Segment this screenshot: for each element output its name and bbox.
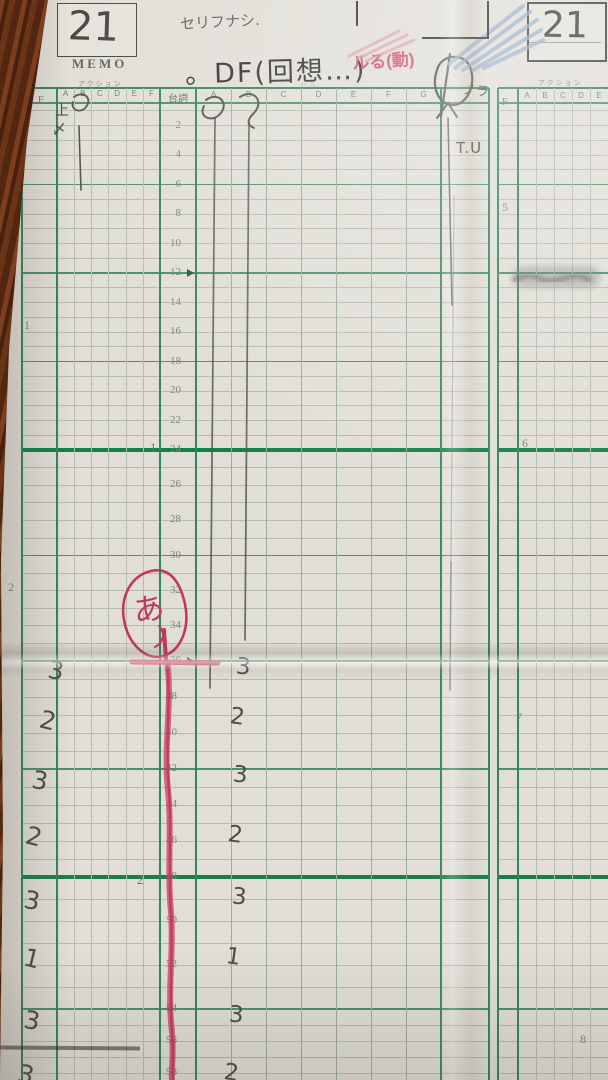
red-stub xyxy=(164,630,166,660)
loop-mark-action-b xyxy=(72,94,88,110)
pencil-line-cell-b xyxy=(245,122,249,640)
photo-of-anime-timing-sheet: ABCDEFABCDEFGABCDEF246810121416182022242… xyxy=(0,0,608,1080)
timing-count-middle: 3 xyxy=(235,653,252,680)
red-scribble xyxy=(349,31,414,61)
camera-circle-mark xyxy=(435,57,472,105)
timing-count-middle: 2 xyxy=(222,1059,240,1080)
red-start-bar xyxy=(132,662,218,663)
partial-black-box xyxy=(357,1,489,38)
red-crayon-marks xyxy=(123,570,218,1080)
timing-count-middle: 3 xyxy=(231,883,248,910)
pencil-line-action-b xyxy=(79,126,81,190)
handwriting-strokes xyxy=(0,0,608,1080)
camera-arrow-shaft xyxy=(448,118,452,305)
timing-count-middle: 3 xyxy=(232,761,249,788)
timing-count-middle: 3 xyxy=(228,1001,245,1028)
loop-mark-cell-a xyxy=(203,97,224,119)
pencil-line-right-band-dark xyxy=(450,562,451,690)
pencil-line-cell-a xyxy=(210,118,215,688)
smudge-squiggle xyxy=(515,275,589,281)
red-circle xyxy=(123,570,186,656)
timing-sheet-paper: ABCDEFABCDEFGABCDEF246810121416182022242… xyxy=(0,0,608,1080)
red-tail xyxy=(155,626,163,647)
